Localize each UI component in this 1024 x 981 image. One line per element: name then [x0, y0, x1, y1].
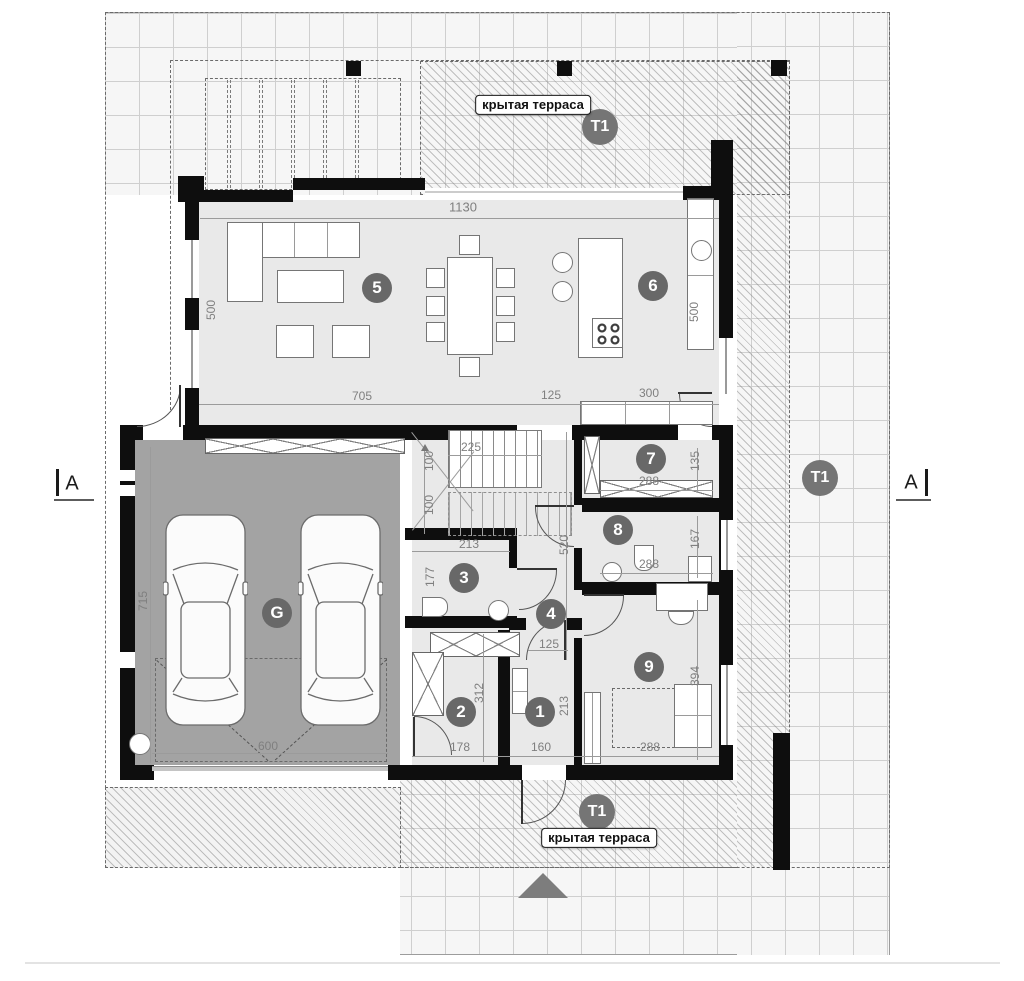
door-leaf-bedroom — [584, 594, 624, 596]
dim-kitchen-counter-width: 300 — [639, 387, 659, 399]
wall-garage-bottom-west — [120, 765, 154, 780]
car — [163, 512, 248, 728]
terrace-badge-right: T1 — [802, 460, 838, 496]
terrace-bottom-hatch — [400, 780, 737, 868]
wall-hall-entry-a — [509, 618, 526, 630]
garage-floor-drain — [129, 733, 151, 755]
door-leaf-terrace-west — [179, 385, 181, 427]
dimension-line — [448, 455, 542, 456]
armchair — [276, 325, 314, 358]
toilet — [422, 597, 448, 617]
room-badge-living: 5 — [362, 273, 392, 303]
section-marker-right: A — [904, 472, 917, 495]
wall-hall-right-c — [574, 638, 582, 765]
entrance-arrow-icon — [518, 873, 568, 898]
terrace-label-top: крытая терраса — [475, 95, 591, 115]
terrace-label-bottom: крытая терраса — [541, 828, 657, 848]
terrace-column — [346, 61, 361, 76]
dim-pantry-width: 288 — [639, 475, 659, 487]
terrace-column — [771, 60, 787, 76]
kitchen-counter-right — [687, 198, 714, 350]
dim-garage-height: 715 — [137, 591, 149, 611]
dim-entry-door-width: 125 — [539, 638, 559, 650]
section-marker-bar-right — [925, 469, 928, 496]
wall-bottom-west — [412, 765, 522, 780]
floor-plan: 1130 500 500 705 125 300 715 600 225 100… — [0, 0, 1024, 981]
wall-hall-right-b — [574, 548, 582, 590]
dimension-line — [412, 756, 719, 757]
pergola-beam — [259, 80, 263, 188]
roof-overhang-line-left — [170, 60, 171, 410]
wall-hall-right-a — [574, 428, 582, 505]
coffee-table — [277, 270, 344, 303]
wall-top-west — [185, 190, 293, 202]
room-badge-hall: 4 — [536, 599, 566, 629]
window-bath-right — [721, 520, 733, 570]
window-living-left-1 — [185, 240, 199, 298]
pergola-beam — [355, 80, 359, 188]
dim-utility-width: 178 — [450, 741, 470, 753]
dim-top-width: 1130 — [449, 201, 477, 214]
dim-wc-height: 177 — [424, 567, 436, 587]
section-marker-underline-left — [54, 499, 94, 501]
door-leaf-front — [521, 780, 523, 824]
wall-top-raised — [293, 178, 425, 190]
terrace-column — [557, 61, 572, 76]
utility-cabinet-left — [412, 652, 444, 716]
section-marker-underline-right — [896, 499, 931, 501]
door-leaf-bath — [535, 505, 574, 507]
room-badge-wc: 3 — [449, 563, 479, 593]
driveway-apron-hatch — [105, 787, 401, 868]
kitchen-sink — [691, 240, 712, 261]
dim-living-width: 705 — [352, 390, 372, 402]
wall-hall-entry-b — [566, 618, 582, 630]
staircase-direction-arrow — [421, 444, 429, 451]
window-kitchen-right — [720, 338, 732, 394]
pantry-shelf-left — [584, 436, 600, 494]
pergola-outline — [205, 78, 401, 190]
pergola-beam — [323, 80, 327, 188]
garage-shelving — [205, 438, 405, 454]
wall-pantry-bath — [582, 498, 719, 512]
dim-utility-height: 312 — [473, 683, 485, 703]
cooktop — [592, 318, 623, 348]
sofa-chaise — [227, 222, 263, 302]
dining-chair — [496, 296, 515, 316]
dim-kitchen-right-height: 500 — [688, 302, 700, 322]
dimension-line — [412, 551, 510, 552]
wardrobe — [584, 692, 601, 764]
window-living-left-2 — [185, 330, 199, 388]
roof-overhang-line-top — [170, 60, 790, 61]
footer-divider — [25, 962, 1000, 964]
door-leaf-utility — [413, 717, 415, 756]
dim-entry-height: 213 — [558, 696, 570, 716]
wall-kitchen-jut-v — [711, 140, 733, 190]
dining-chair — [426, 296, 445, 316]
dining-table — [447, 257, 493, 355]
dimension-line — [200, 218, 719, 219]
dim-garage-door-width: 600 — [258, 740, 278, 752]
door-leaf-wc — [517, 568, 557, 570]
dining-chair — [426, 268, 445, 288]
garden-wall-segment — [773, 733, 790, 870]
wall-mid-corner — [712, 425, 733, 440]
armchair — [332, 325, 370, 358]
wall-bottom-east — [566, 765, 719, 780]
dim-passage-width: 125 — [541, 389, 561, 401]
dim-stairs-width: 225 — [461, 441, 481, 453]
staircase-upper-flight — [448, 430, 542, 488]
vent-garage-left — [120, 485, 135, 496]
room-badge-kitchen: 6 — [638, 271, 668, 301]
dim-wc-width: 213 — [459, 538, 479, 550]
dim-pantry-height: 135 — [689, 451, 701, 471]
pergola-beam — [291, 80, 295, 188]
bath-sink — [602, 562, 622, 582]
room-badge-pantry: 7 — [636, 444, 666, 474]
bar-stool — [552, 281, 573, 302]
terrace-badge-bottom: T1 — [579, 794, 615, 830]
dim-bedroom-width: 288 — [640, 741, 660, 753]
room-badge-garage: G — [262, 598, 292, 628]
dim-living-left-height: 500 — [205, 300, 217, 320]
dim-hall-height: 520 — [558, 535, 570, 555]
dim-entry-width: 160 — [531, 741, 551, 753]
car — [298, 512, 383, 728]
section-marker-bar-left — [56, 469, 59, 496]
dim-bath-height: 167 — [689, 529, 701, 549]
room-badge-utility: 2 — [446, 697, 476, 727]
dining-chair — [459, 235, 480, 255]
rug-outline — [612, 688, 680, 748]
room-badge-entry: 1 — [525, 697, 555, 727]
door-opening-garage-side — [120, 652, 135, 668]
dim-stairs-flight-a: 100 — [423, 451, 435, 471]
section-marker-left: A — [65, 473, 78, 496]
room-badge-bedroom: 9 — [634, 652, 664, 682]
dim-stairs-flight-b: 100 — [423, 495, 435, 515]
door-leaf-pantry — [678, 392, 712, 394]
room-badge-bath: 8 — [603, 515, 633, 545]
garage-door-sill — [152, 766, 388, 771]
wall-garage-bottom-east — [388, 765, 412, 780]
desk — [656, 583, 708, 611]
sofa-bed — [674, 684, 712, 748]
wall-living-left — [185, 190, 199, 425]
window-bedroom-right — [721, 665, 733, 745]
bar-stool — [552, 252, 573, 273]
dim-bath-width: 288 — [639, 558, 659, 570]
dining-chair — [496, 322, 515, 342]
wall-kitchen-right — [719, 200, 733, 338]
dimension-line — [199, 404, 719, 405]
dining-chair — [496, 268, 515, 288]
pergola-beam — [227, 80, 231, 188]
window-top-glazing — [425, 188, 683, 196]
door-opening-terrace-west — [143, 425, 183, 440]
vent-garage-left — [120, 470, 135, 481]
dining-chair — [459, 357, 480, 377]
wc-sink — [488, 600, 509, 621]
dimension-line — [150, 447, 151, 763]
dimension-line — [152, 753, 388, 754]
dim-bedroom-height: 394 — [689, 666, 701, 686]
washing-machine — [688, 556, 712, 582]
dining-chair — [426, 322, 445, 342]
